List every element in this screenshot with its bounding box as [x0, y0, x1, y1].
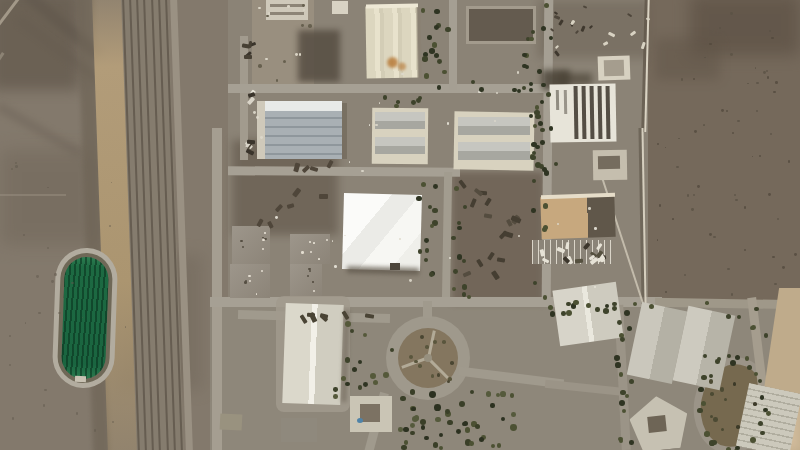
gable-a-roof-1: [375, 112, 425, 129]
island-shrubs-dot: [433, 340, 437, 344]
trees-center-row-e-dot: [457, 221, 461, 225]
campus-specks-dot: [256, 116, 259, 119]
desert-left-dots-dot: [51, 280, 54, 283]
road-west-campus: [212, 128, 222, 450]
grove-south-dot: [429, 391, 436, 398]
desert-left-dots-dot: [15, 162, 17, 164]
grove-south-dot: [447, 420, 453, 426]
desert-east-dots-dot: [681, 78, 683, 80]
trees-ne-top-dot: [546, 92, 551, 97]
trees-damaged-south-dot: [549, 126, 553, 130]
bldg-shed-nw: [266, 0, 308, 20]
trees-road-top-east-dot: [479, 87, 484, 92]
desert-east-dots-dot: [763, 71, 766, 74]
trees-roundabout-west-dot: [352, 367, 357, 372]
bldg-shed-nw2: [332, 1, 348, 14]
island-shrubs-dot: [442, 340, 446, 344]
grove-south-dot: [410, 431, 415, 436]
trees-hall-north-east-dot: [437, 85, 442, 90]
teardrop-shrubs-dot: [713, 417, 718, 422]
trees-center-row-w-dot: [416, 196, 422, 202]
desert-east-dots-dot: [730, 53, 733, 56]
grove-south-dot: [469, 441, 474, 446]
teardrop-trees-dot: [704, 431, 709, 436]
desert-left-dots-dot: [94, 429, 96, 431]
rubble-zone-ne: [538, 0, 650, 58]
cube-roof-dots-2-dot: [301, 251, 303, 253]
trees-road-ne-dot: [532, 179, 536, 183]
trees-roundabout-west-dot: [383, 372, 389, 378]
grove-south-dot: [475, 424, 480, 429]
trees-br-road-dot: [627, 326, 632, 331]
trees-hall-north-east-dot: [434, 53, 439, 58]
teardrop-shrubs-dot: [753, 402, 757, 406]
laydown-dots-nw-dot: [302, 4, 305, 7]
campus-specks-dot: [361, 170, 364, 173]
desert-east-dots-dot: [676, 166, 679, 169]
grove-south-dot: [420, 419, 426, 425]
trees-br-road-dot: [629, 440, 634, 445]
laydown-dots-nw-dot: [299, 53, 302, 56]
cube-roof-dots-1-dot: [240, 240, 242, 242]
island-shrubs-dot: [431, 374, 434, 377]
teardrop-trees-dot: [701, 375, 706, 380]
trees-road-ne-dot: [533, 124, 537, 128]
desert-east-dots-dot: [735, 199, 737, 201]
desert-left-dots-dot: [9, 335, 11, 337]
cube-roof-dots-2-dot: [309, 241, 311, 243]
trees-center-row-e-dot: [463, 205, 467, 209]
trees-br-road-dot: [622, 409, 626, 413]
road-top: [228, 84, 550, 93]
laydown-dots-nw-dot: [287, 5, 290, 8]
trees-center-row-e-dot: [453, 269, 458, 274]
laydown-dots-nw-dot: [303, 9, 305, 11]
desert-east-dots-dot: [768, 193, 771, 196]
campus-specks-dot: [447, 122, 450, 125]
bldg-small-ne-inner: [604, 60, 625, 77]
desert-east-dots-dot: [731, 293, 734, 296]
island-shrubs-dot: [414, 360, 418, 364]
desert-left-dots-dot: [43, 404, 45, 406]
cube-roof-dots-3-dot: [256, 293, 258, 295]
pentagon-court: [647, 415, 667, 433]
trees-road-top-east-dot: [529, 82, 533, 86]
grove-south-dot: [500, 391, 506, 397]
cube-roof-dots-2-dot: [326, 239, 328, 241]
desert-left-dots-dot: [71, 282, 74, 285]
road-north-center: [449, 0, 457, 90]
rubble-shadow-nw: [298, 30, 340, 82]
desert-east-dots-dot: [704, 57, 706, 59]
teardrop-trees-dot: [760, 431, 764, 435]
grove-south-dot: [510, 393, 514, 397]
teardrop-shrubs-dot: [710, 392, 714, 396]
cube-roof-dots-4-dot: [309, 270, 311, 272]
cars-west-road-dot: [244, 55, 252, 59]
gable-a-roof-2: [375, 137, 425, 154]
trees-road-top-dot: [394, 104, 399, 109]
desert-east-dots-dot: [709, 43, 711, 45]
desert-left-dots-dot: [23, 234, 25, 236]
trees-damaged-south-dot: [542, 167, 547, 172]
trees-road-top-east-dot: [541, 83, 546, 88]
bldg-shed-s2: [220, 413, 243, 430]
rust-stain-2: [397, 61, 407, 72]
laydown-dots-nw-dot: [258, 7, 260, 9]
trees-road-south-row-dot: [566, 310, 572, 316]
trees-br-road-dot: [614, 355, 620, 361]
trees-br-ne-dot: [751, 325, 756, 330]
trees-roundabout-west-dot: [345, 357, 350, 362]
cube-roof-dots-2-dot: [318, 258, 320, 260]
trees-ne-top-dot: [522, 53, 526, 57]
dark-lot-ne: [469, 9, 533, 41]
warehouse-bluegray-top: [264, 101, 342, 111]
desert-east-dots-dot: [767, 76, 770, 79]
campus-specks-dot: [588, 207, 591, 210]
desert-left-dots-dot: [54, 273, 56, 275]
desert-east-dots-dot: [726, 110, 728, 112]
trees-road-ne-dot: [531, 208, 536, 213]
campus-specks-dot: [260, 136, 263, 139]
island-shrubs-dot: [420, 335, 424, 339]
bldg-hall-white: [342, 193, 422, 271]
trees-br-road-dot: [615, 362, 621, 368]
trees-center-row-e-dot: [452, 287, 456, 291]
trees-center-row-w-dot: [429, 272, 434, 277]
trees-roundabout-west-dot: [363, 382, 368, 387]
cube-roof-dots-2-dot: [313, 242, 315, 244]
trees-br-road-dot: [619, 372, 623, 376]
trees-road-ne-dot: [535, 114, 540, 119]
teardrop-trees-dot: [712, 440, 717, 445]
trees-hall-north-east-dot: [427, 35, 431, 39]
trees-road-south-row-dot: [566, 302, 571, 307]
trees-center-row-w-dot: [432, 208, 437, 213]
bldg-shed-s1: [281, 418, 317, 442]
trees-road-south-row-dot: [612, 306, 617, 311]
trees-hall-north-east-dot: [429, 48, 434, 53]
hall-white-door: [390, 263, 400, 270]
bldg-cube-2: [290, 234, 330, 264]
trees-road-ne-dot: [540, 140, 545, 145]
trees-road-south-row-dot: [624, 310, 630, 316]
trees-damaged-south-dot: [554, 162, 558, 166]
trees-hall-north-east-dot: [422, 56, 427, 61]
desert-east-dots-dot: [771, 37, 773, 39]
grove-south-dot: [486, 391, 491, 396]
desert-east-dots-dot: [775, 81, 778, 84]
grove-south-dot: [424, 436, 429, 441]
trees-center-row-w-dot: [424, 238, 429, 243]
grove-south-dot: [459, 401, 465, 407]
trees-road-south-row-dot: [603, 308, 609, 314]
grove-south-dot: [398, 427, 402, 431]
lot-west-debris-dot: [319, 194, 329, 199]
trees-center-row-w-dot: [425, 248, 430, 253]
desert-left-dots-dot: [15, 165, 18, 168]
trees-ne-top-dot: [537, 69, 542, 74]
trees-hall-north-east-dot: [434, 25, 439, 30]
trees-ne-top-dot: [541, 26, 546, 31]
desert-east-dots-dot: [721, 109, 724, 112]
trees-damaged-south-dot: [531, 142, 536, 147]
teardrop-trees-dot: [760, 395, 764, 399]
desert-left-dots-dot: [12, 417, 15, 420]
trees-center-row-w-dot: [428, 205, 432, 209]
warehouse-bluegray-shadow: [342, 103, 347, 159]
trees-hall-north-east-dot: [432, 42, 437, 47]
teardrop-trees-dot: [698, 387, 703, 392]
teardrop-trees-dot: [701, 401, 706, 406]
trees-road-south-row-dot: [561, 311, 566, 316]
trees-road-south-row-dot: [612, 302, 616, 306]
pool-ramp: [75, 376, 86, 382]
trees-hall-north-east-dot: [434, 9, 440, 15]
desert-left-dots-dot: [38, 312, 41, 315]
satellite-image: [0, 0, 800, 450]
desert-left-dots-dot: [58, 312, 60, 314]
trees-road-ne-dot: [543, 225, 548, 230]
grove-south-dot: [510, 424, 517, 431]
trees-br-road-dot: [619, 439, 623, 443]
court-small-inner: [360, 404, 380, 422]
grove-south-dot: [403, 427, 408, 432]
campus-specks-dot: [334, 265, 337, 268]
trees-center-row-w-dot: [433, 184, 438, 189]
grove-south-dot: [445, 409, 450, 414]
grove-south-dot: [401, 445, 407, 450]
teardrop-shrubs-dot: [709, 379, 713, 383]
trees-br-ne-dot: [737, 315, 741, 319]
island-shrubs-dot: [425, 345, 429, 349]
desert-east-dots-dot: [772, 256, 775, 259]
desert-east-dots-dot: [732, 132, 734, 134]
trees-road-ne-dot: [543, 203, 548, 208]
island-shrubs-dot: [418, 364, 422, 368]
desert-east-dots-dot: [697, 185, 700, 188]
trees-road-ne-dot: [535, 105, 539, 109]
desert-east-dots-dot: [737, 120, 740, 123]
cube-roof-dots-3-dot: [244, 281, 246, 283]
track-faint-h: [0, 194, 66, 196]
court-small-pool: [357, 418, 363, 423]
teardrop-trees-dot: [697, 408, 703, 414]
trees-roundabout-west-dot: [345, 321, 351, 327]
laydown-dots-nw-dot: [268, 12, 270, 14]
trees-road-ne-dot: [543, 295, 548, 300]
cube-roof-dots-3-dot: [248, 275, 250, 277]
grove-south-dot: [465, 427, 471, 433]
damaged-streak-left-2: [564, 90, 567, 114]
desert-east-dots-dot: [766, 70, 768, 72]
roundabout-hub: [424, 354, 432, 362]
grove-south-dot: [411, 407, 415, 411]
bldg-tan: [540, 195, 615, 240]
road-mid: [228, 166, 460, 177]
laydown-dots-nw-dot: [276, 79, 279, 82]
trees-road-top-east-dot: [529, 88, 533, 92]
trees-center-row-e-dot: [457, 254, 462, 259]
teardrop-shrubs-dot: [736, 425, 739, 428]
trees-br-ne-dot: [705, 301, 709, 305]
desert-east-dots-dot: [687, 194, 689, 196]
laydown-dots-nw-dot: [295, 53, 298, 56]
gable-b-roof-2: [458, 142, 530, 160]
cars-parking-dot: [575, 259, 583, 264]
cube-roof-dots-4-dot: [312, 281, 314, 283]
campus-specks-dot: [557, 223, 559, 225]
damaged-streak-left-1: [556, 90, 559, 110]
desert-east-dots-dot: [744, 249, 746, 251]
campus-specks-dot: [518, 235, 520, 237]
grove-south-dot: [421, 425, 426, 430]
desert-east-dots-dot: [709, 233, 712, 236]
grove-south-dot: [462, 422, 466, 426]
teardrop-shrubs-dot: [720, 387, 724, 391]
cube-roof-dots-1-dot: [264, 232, 266, 234]
teardrop-trees-dot: [750, 437, 756, 443]
teardrop-trees-dot: [766, 411, 771, 416]
trees-center-row-e-dot: [462, 284, 467, 289]
teardrop-trees-dot: [747, 365, 752, 370]
trees-br-ne-dot: [745, 356, 749, 360]
trees-road-south-row-dot: [595, 307, 599, 311]
grove-south-dot: [491, 444, 495, 448]
desert-east-dots-dot: [755, 67, 757, 69]
grove-south-dot: [456, 429, 461, 434]
laydown-dots-nw-dot: [258, 64, 261, 67]
trees-roundabout-west-dot: [333, 394, 338, 399]
desert-east-dots-dot: [774, 283, 777, 286]
trees-center-row-e-dot: [451, 236, 456, 241]
desert-east-dots-dot: [747, 83, 749, 85]
cars-west-road-dot: [247, 140, 255, 144]
shed-line-2: [270, 12, 304, 15]
grove-south-dot: [410, 389, 415, 394]
teardrop-trees-dot: [754, 372, 758, 376]
trees-road-ne-dot: [540, 128, 544, 132]
campus-specks-dot: [253, 111, 256, 114]
trees-damaged-south-dot: [535, 162, 541, 168]
laydown-dots-nw-dot: [308, 24, 311, 27]
desert-east-dots-dot: [691, 208, 693, 210]
grove-south-dot: [511, 412, 516, 417]
desert-left-dots-dot: [36, 275, 39, 278]
trees-road-top-dot: [411, 100, 416, 105]
grove-south-dot: [404, 440, 408, 444]
warehouse-bluegray-west: [257, 101, 265, 159]
trees-roundabout-west-dot: [350, 329, 354, 333]
annex-dark: [598, 156, 620, 169]
desert-east-dots-dot: [756, 82, 758, 84]
island-shrubs-dot: [437, 373, 440, 376]
campus-specks-dot: [409, 279, 412, 282]
lot-se-debris-dot: [484, 213, 493, 218]
desert-east-dots-dot: [703, 124, 705, 126]
cube-roof-dots-1-dot: [262, 248, 264, 250]
trees-road-top-dot: [383, 95, 387, 99]
campus-specks-dot: [594, 227, 597, 230]
grove-south-dot: [490, 403, 494, 407]
campus-specks-dot: [375, 124, 378, 127]
spur-north: [423, 301, 432, 318]
grove-south-dot: [434, 404, 441, 411]
pool-streaks: [61, 256, 109, 379]
trees-roundabout-west-dot: [333, 387, 337, 391]
laydown-dots-nw-dot: [301, 24, 304, 27]
teardrop-shrubs-dot: [733, 382, 736, 385]
trees-br-ne-dot: [764, 333, 768, 337]
desert-east-dots-dot: [672, 218, 674, 220]
bldg-cube-4: [290, 264, 322, 296]
island-shrubs-dot: [450, 361, 454, 365]
